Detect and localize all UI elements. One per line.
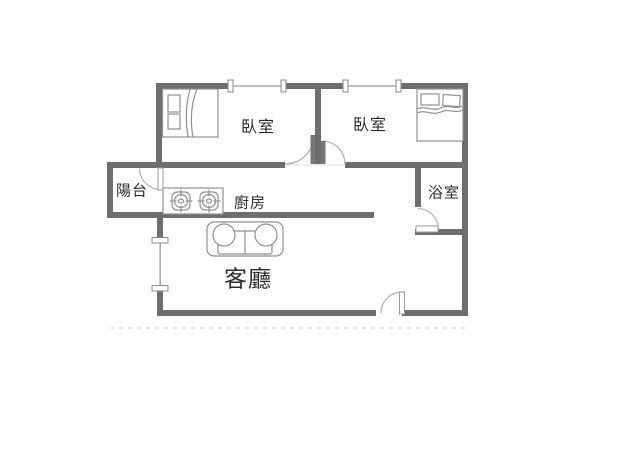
bed-icon-bedroom-2: [417, 89, 463, 141]
entrance-door: [381, 292, 405, 314]
bathroom-door: [416, 209, 439, 233]
room-label-kitchen: 廚房: [234, 196, 266, 211]
bed-icon-bedroom-1: [163, 89, 219, 137]
room-label-bathroom: 浴室: [428, 186, 460, 201]
window-left: [152, 238, 168, 292]
room-label-bedroom-1: 臥室: [241, 119, 275, 135]
bedroom-2-door: [321, 141, 345, 164]
stove-icon: [163, 188, 223, 214]
window-top-1: [228, 80, 286, 92]
room-label-balcony: 陽台: [116, 184, 148, 199]
floor-plan-drawing: [0, 0, 640, 461]
bedroom-1-door: [285, 135, 315, 164]
window-top-2: [343, 80, 401, 92]
sofa-icon: [207, 222, 283, 256]
floor-plan: 臥室 臥室 陽台 廚房 浴室 客廳: [0, 0, 640, 461]
room-label-bedroom-2: 臥室: [353, 117, 387, 133]
room-label-living-room: 客廳: [224, 269, 272, 292]
walls: [107, 83, 468, 316]
